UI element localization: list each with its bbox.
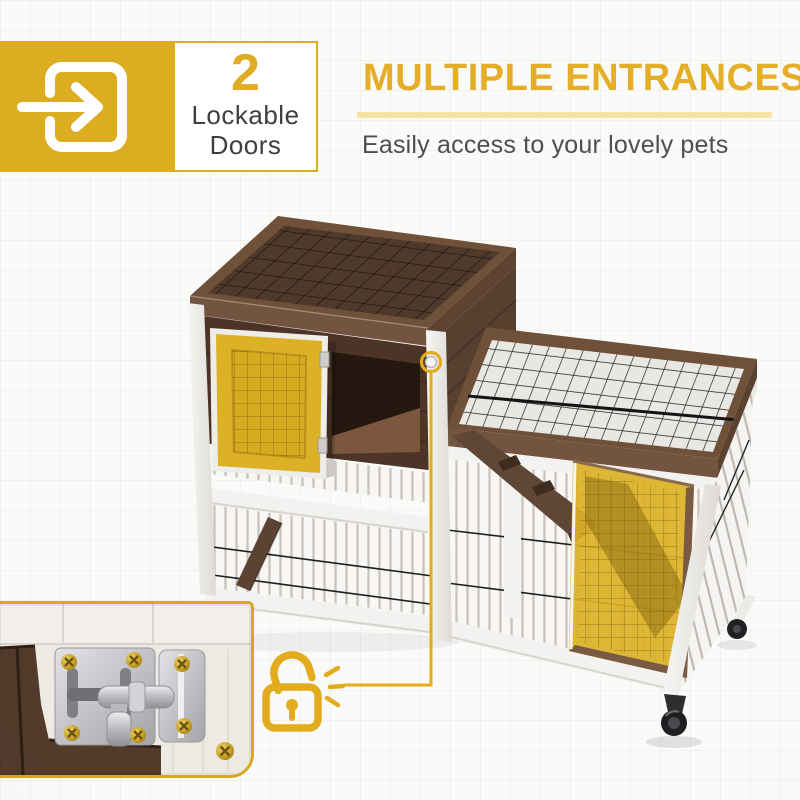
page-subtitle: Easily access to your lovely pets [362, 131, 728, 160]
door-enter-arrow-icon [0, 41, 173, 172]
door-count-badge: 2 Lockable Doors [173, 41, 318, 172]
caster-wheel-back [727, 619, 747, 639]
latch-inset-photo [0, 601, 254, 778]
left-door-highlight [210, 328, 336, 479]
right-run [447, 327, 757, 736]
bolt-knob [107, 712, 131, 746]
door-knob [426, 357, 437, 368]
marketing-image: 2 Lockable Doors MULTIPLE ENTRANCES Easi… [0, 0, 800, 800]
feature-icon-block [0, 41, 173, 172]
title-underline [357, 112, 772, 118]
sparkle-lines [326, 668, 343, 705]
door-count-label-line1: Lockable [175, 100, 316, 130]
door-count-label-line2: Doors [175, 130, 316, 160]
door-count: 2 [175, 46, 316, 100]
caster-wheel-front [661, 694, 687, 736]
page-title: MULTIPLE ENTRANCES [363, 57, 800, 100]
unlocked-padlock-icon [266, 651, 318, 728]
